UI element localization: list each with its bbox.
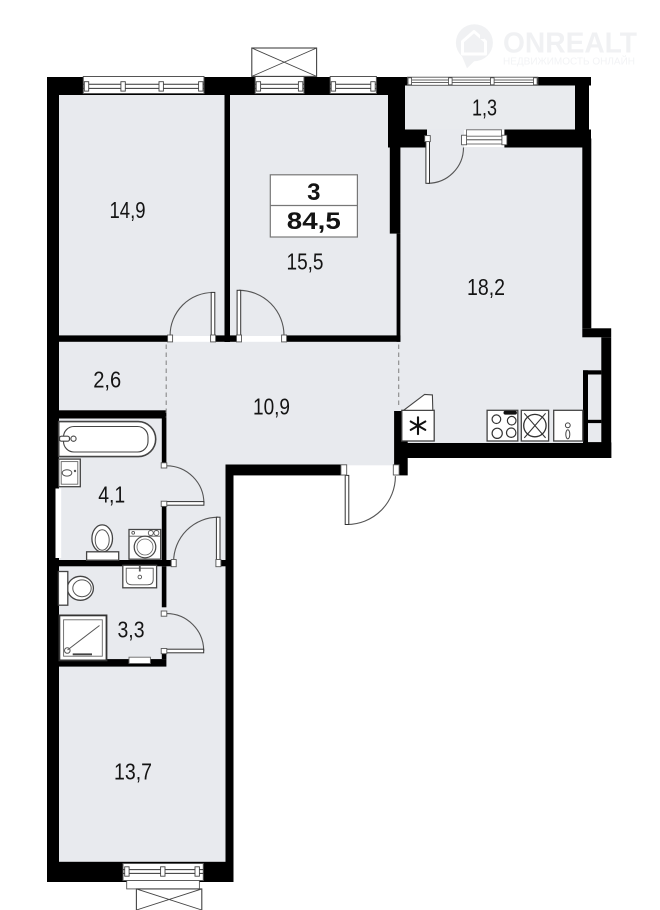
svg-text:13,7: 13,7 (114, 759, 152, 785)
svg-text:10,9: 10,9 (253, 394, 290, 420)
svg-text:2,6: 2,6 (93, 367, 121, 393)
svg-text:3,3: 3,3 (118, 617, 145, 643)
svg-text:15,5: 15,5 (287, 249, 324, 275)
svg-text:84,5: 84,5 (287, 208, 341, 235)
svg-text:14,9: 14,9 (110, 197, 146, 223)
svg-text:1,3: 1,3 (472, 95, 497, 121)
svg-text:НЕДВИЖИМОСТЬ ОНЛАЙН: НЕДВИЖИМОСТЬ ОНЛАЙН (503, 55, 635, 68)
svg-text:4,1: 4,1 (98, 482, 125, 508)
svg-text:18,2: 18,2 (467, 274, 505, 300)
svg-text:3: 3 (307, 179, 320, 206)
